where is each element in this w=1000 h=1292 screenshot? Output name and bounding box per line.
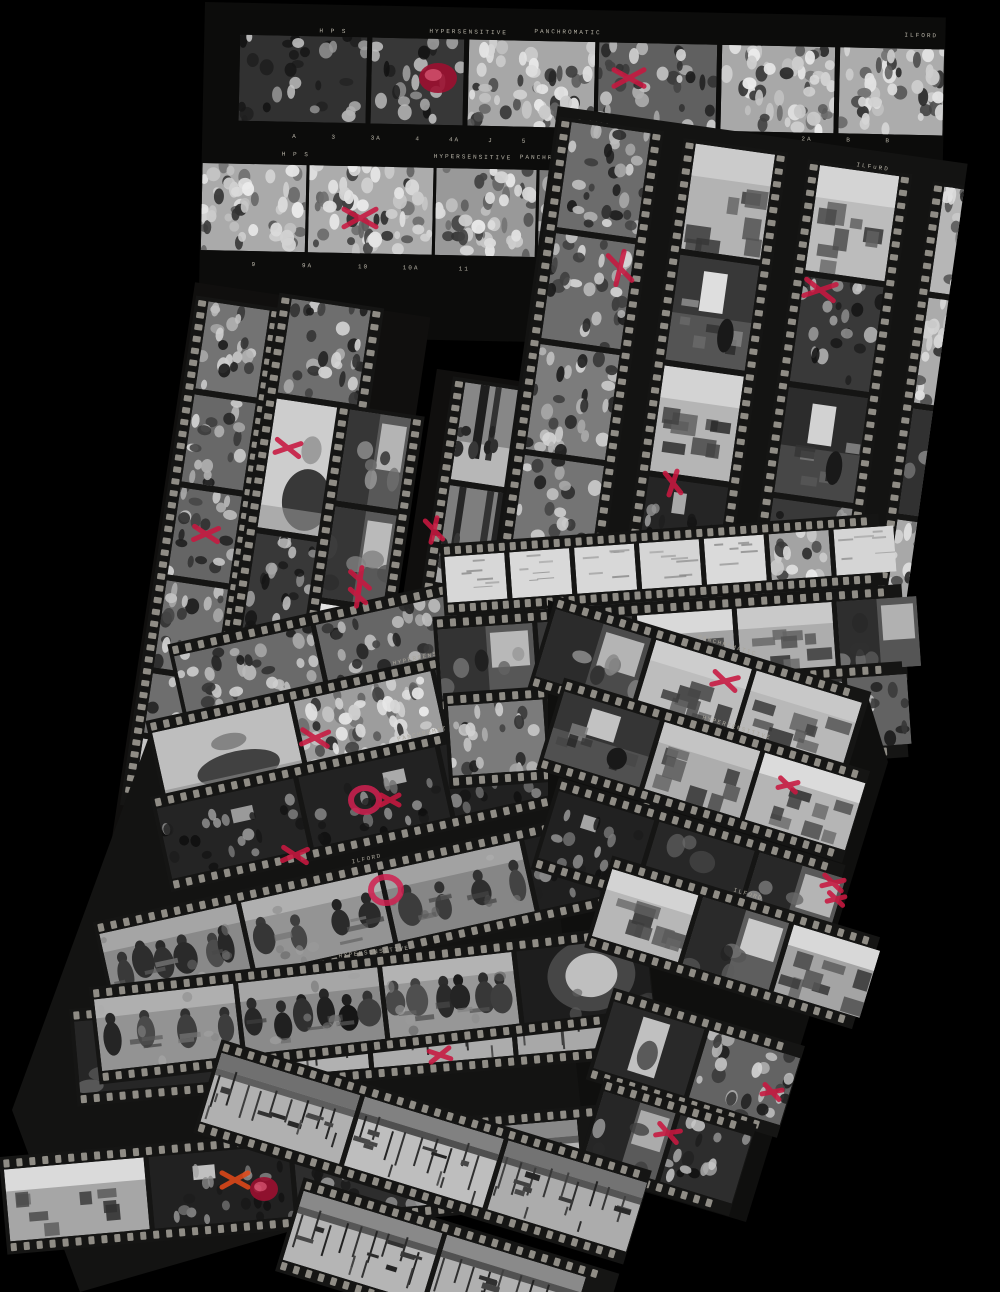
svg-text:H P S: H P S bbox=[319, 27, 347, 35]
svg-text:PANCHROMATIC: PANCHROMATIC bbox=[534, 28, 601, 36]
svg-text:H P S: H P S bbox=[282, 151, 310, 159]
svg-text:ILFORD: ILFORD bbox=[904, 32, 938, 40]
